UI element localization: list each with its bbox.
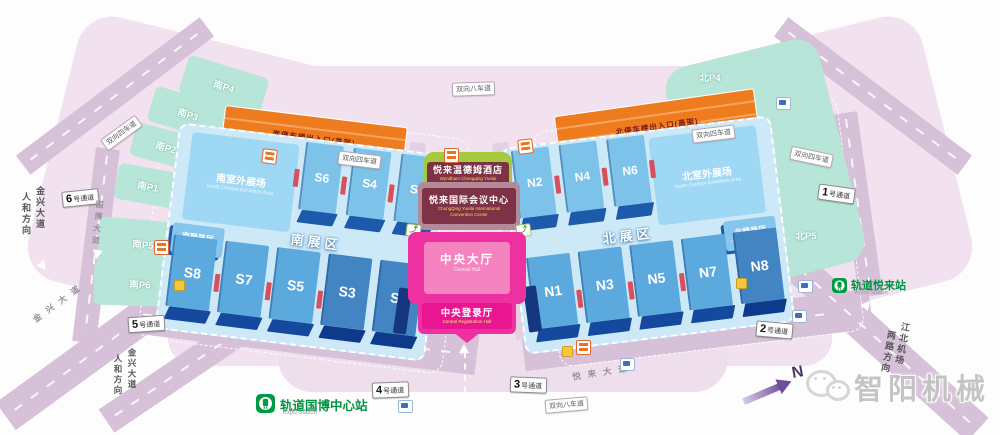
entrance-marker-icon <box>174 280 185 291</box>
hall-N3: N3 <box>578 246 630 323</box>
wechat-eye <box>823 377 826 380</box>
convention-center-name: 悦来国际会议中心 <box>429 195 509 206</box>
central-hall-name: 中央大厅 <box>424 254 510 267</box>
hall-label: N7 <box>698 263 718 281</box>
central-hall-name-en: Central Hall <box>424 267 510 274</box>
road-jinxing-avenue-label-sw: 金兴大道 <box>126 348 137 390</box>
parking-label: 南P4 <box>212 76 236 96</box>
entrance-marker-icon <box>736 278 747 289</box>
gate-suffix: 号通道 <box>383 386 404 397</box>
expo-center-map: 南P4 南P3 南P2 南P1 南P5 南P6 北P4 北P3 北P2 北P1 … <box>0 0 1000 435</box>
bus-stop-icon <box>798 280 813 293</box>
traffic-arrow <box>91 249 102 260</box>
convention-center-banner: 悦来国际会议中心 ChongQing Yuelai International … <box>422 188 516 224</box>
hall-label: S5 <box>286 277 305 295</box>
gate-number: 5 <box>132 319 139 331</box>
central-registration-banner: 中央登录厅 Central Registration Hall <box>422 303 512 329</box>
gate-suffix: 号通道 <box>139 319 161 330</box>
wechat-eye <box>832 386 835 389</box>
hall-label: N5 <box>646 269 666 287</box>
gate-5: 5号通道 <box>127 315 165 334</box>
hotel-banner: 悦来温德姆酒店 Wyndham Chongqing Yuelai <box>427 162 509 184</box>
yuelai-station-label-en: Yuelai Station <box>854 290 888 296</box>
hall-label: S6 <box>314 170 330 186</box>
hall-label: S4 <box>361 176 377 192</box>
hall-label: N6 <box>622 163 639 179</box>
hall-N4: N4 <box>558 141 604 213</box>
lane-label-eight-bottom: 双向八车道 <box>544 396 588 414</box>
expo-station-label-en: Expo Station <box>283 410 317 416</box>
gate-number: 3 <box>514 378 521 390</box>
watermark-brand: 智阳机械 <box>854 366 990 408</box>
hall-N6: N6 <box>606 135 652 207</box>
pedestrian-guide-line <box>464 352 466 392</box>
bus-stop-icon <box>792 310 807 323</box>
gate-2: 2号通道 <box>755 320 793 339</box>
ramp-marker-icon <box>444 148 459 163</box>
hall-label: S7 <box>235 270 254 288</box>
hall-S3: S3 <box>320 253 372 330</box>
hall-S5: S5 <box>268 247 320 324</box>
parking-label: 南P3 <box>176 104 200 124</box>
hall-label: N8 <box>750 257 770 275</box>
hall-label: S8 <box>183 264 202 282</box>
gate-3: 3号通道 <box>510 376 548 393</box>
hall-S8: S8 <box>165 234 217 311</box>
gate-suffix: 号通道 <box>828 189 850 202</box>
hall-label: N2 <box>526 175 543 191</box>
gate-4: 4号通道 <box>372 381 410 398</box>
convention-center-name-en2: Convention Center <box>450 212 488 218</box>
metro-logo-expo <box>256 394 275 413</box>
traffic-arrow <box>459 344 469 353</box>
road-renhe-direction-label-nw: 人和方向 <box>20 192 31 236</box>
wechat-eye <box>838 386 841 389</box>
wechat-logo-icon <box>806 368 850 406</box>
parking-label: 南P2 <box>154 138 178 157</box>
gate-suffix: 号通道 <box>521 381 542 392</box>
lane-label-eight-top: 双向八车道 <box>452 81 495 96</box>
hall-label: S3 <box>338 283 357 301</box>
parking-label: 南P1 <box>136 177 159 194</box>
ramp-marker-icon <box>576 340 591 355</box>
gate-suffix: 号通道 <box>73 193 95 205</box>
road-renhe-direction-label-sw: 人和方向 <box>112 354 123 396</box>
bus-stop-icon <box>398 400 413 413</box>
central-hall-text: 中央大厅 Central Hall <box>424 254 510 274</box>
central-registration-name: 中央登录厅 <box>441 308 494 319</box>
parking-label: 南P5 <box>132 236 154 252</box>
bus-stop-icon <box>620 358 635 371</box>
ramp-marker-icon <box>261 148 278 165</box>
hall-label: N1 <box>543 282 563 300</box>
hall-label: N3 <box>595 276 615 294</box>
south-outdoor-area: 南室外展场 South Outdoor Exhibition Area <box>182 132 300 233</box>
hall-label: N4 <box>574 169 591 185</box>
wechat-bubble-small <box>826 380 850 401</box>
ramp-marker-icon <box>517 138 534 155</box>
hall-N7: N7 <box>681 234 733 311</box>
wechat-eye <box>814 377 817 380</box>
parking-label: 南P6 <box>129 277 151 292</box>
parking-north-4: 北P4 <box>688 70 732 84</box>
entrance-marker-icon <box>562 346 573 357</box>
parking-north-5: 北P5 <box>784 228 828 242</box>
hotel-name-en: Wyndham Chongqing Yuelai <box>440 176 497 182</box>
hall-N5: N5 <box>629 240 681 317</box>
hall-N8: N8 <box>732 227 784 304</box>
ramp-marker-icon <box>154 240 169 255</box>
gate-number: 6 <box>65 193 72 206</box>
central-registration-apron <box>453 332 481 343</box>
gate-number: 4 <box>376 384 383 396</box>
road-jinxing-avenue-label-nw: 金兴大道 <box>34 186 45 230</box>
central-registration-name-en: Central Registration Hall <box>443 319 492 325</box>
metro-logo-yuelai <box>832 278 847 293</box>
gate-suffix: 号通道 <box>767 325 789 337</box>
bus-stop-icon <box>776 97 791 110</box>
compass-north-label: N <box>791 363 806 383</box>
north-exhibition-group: 北室外展场 North Outdoor Exhibition Area 北登录厅… <box>500 115 795 355</box>
gate-number: 2 <box>760 323 767 335</box>
watermark: 智阳机械 <box>806 366 990 408</box>
hall-S7: S7 <box>217 241 269 318</box>
hotel-name: 悦来温德姆酒店 <box>433 165 503 176</box>
